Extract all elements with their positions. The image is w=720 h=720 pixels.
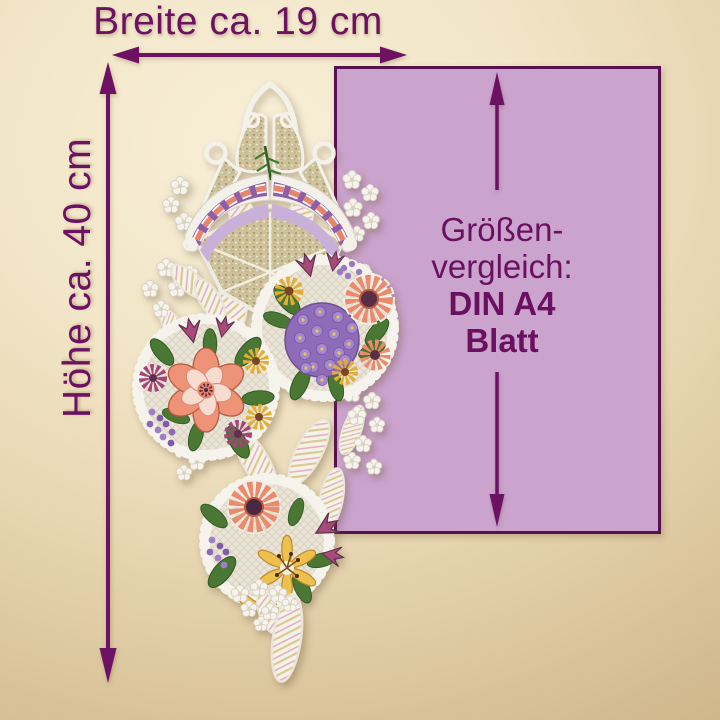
height-dimension-label: Höhe ca. 40 cm xyxy=(56,138,100,418)
comparison-line-4: Blatt xyxy=(431,322,572,359)
lace-ornament-product-image xyxy=(0,0,720,720)
comparison-line-3: DIN A4 xyxy=(431,285,572,322)
coral-daisy xyxy=(237,490,271,524)
comparison-line-2: vergleich: xyxy=(431,248,572,285)
size-comparison-label: Größen- vergleich: DIN A4 Blatt xyxy=(431,211,572,359)
coral-daisy-small xyxy=(365,345,385,365)
product-size-infographic: Breite ca. 19 cm Höhe ca. 40 cm Größen- … xyxy=(0,0,720,720)
medallion-rose xyxy=(136,315,276,462)
width-dimension-label: Breite ca. 19 cm xyxy=(93,0,383,44)
comparison-line-1: Größen- xyxy=(431,211,572,248)
ornament-tail xyxy=(231,579,307,683)
